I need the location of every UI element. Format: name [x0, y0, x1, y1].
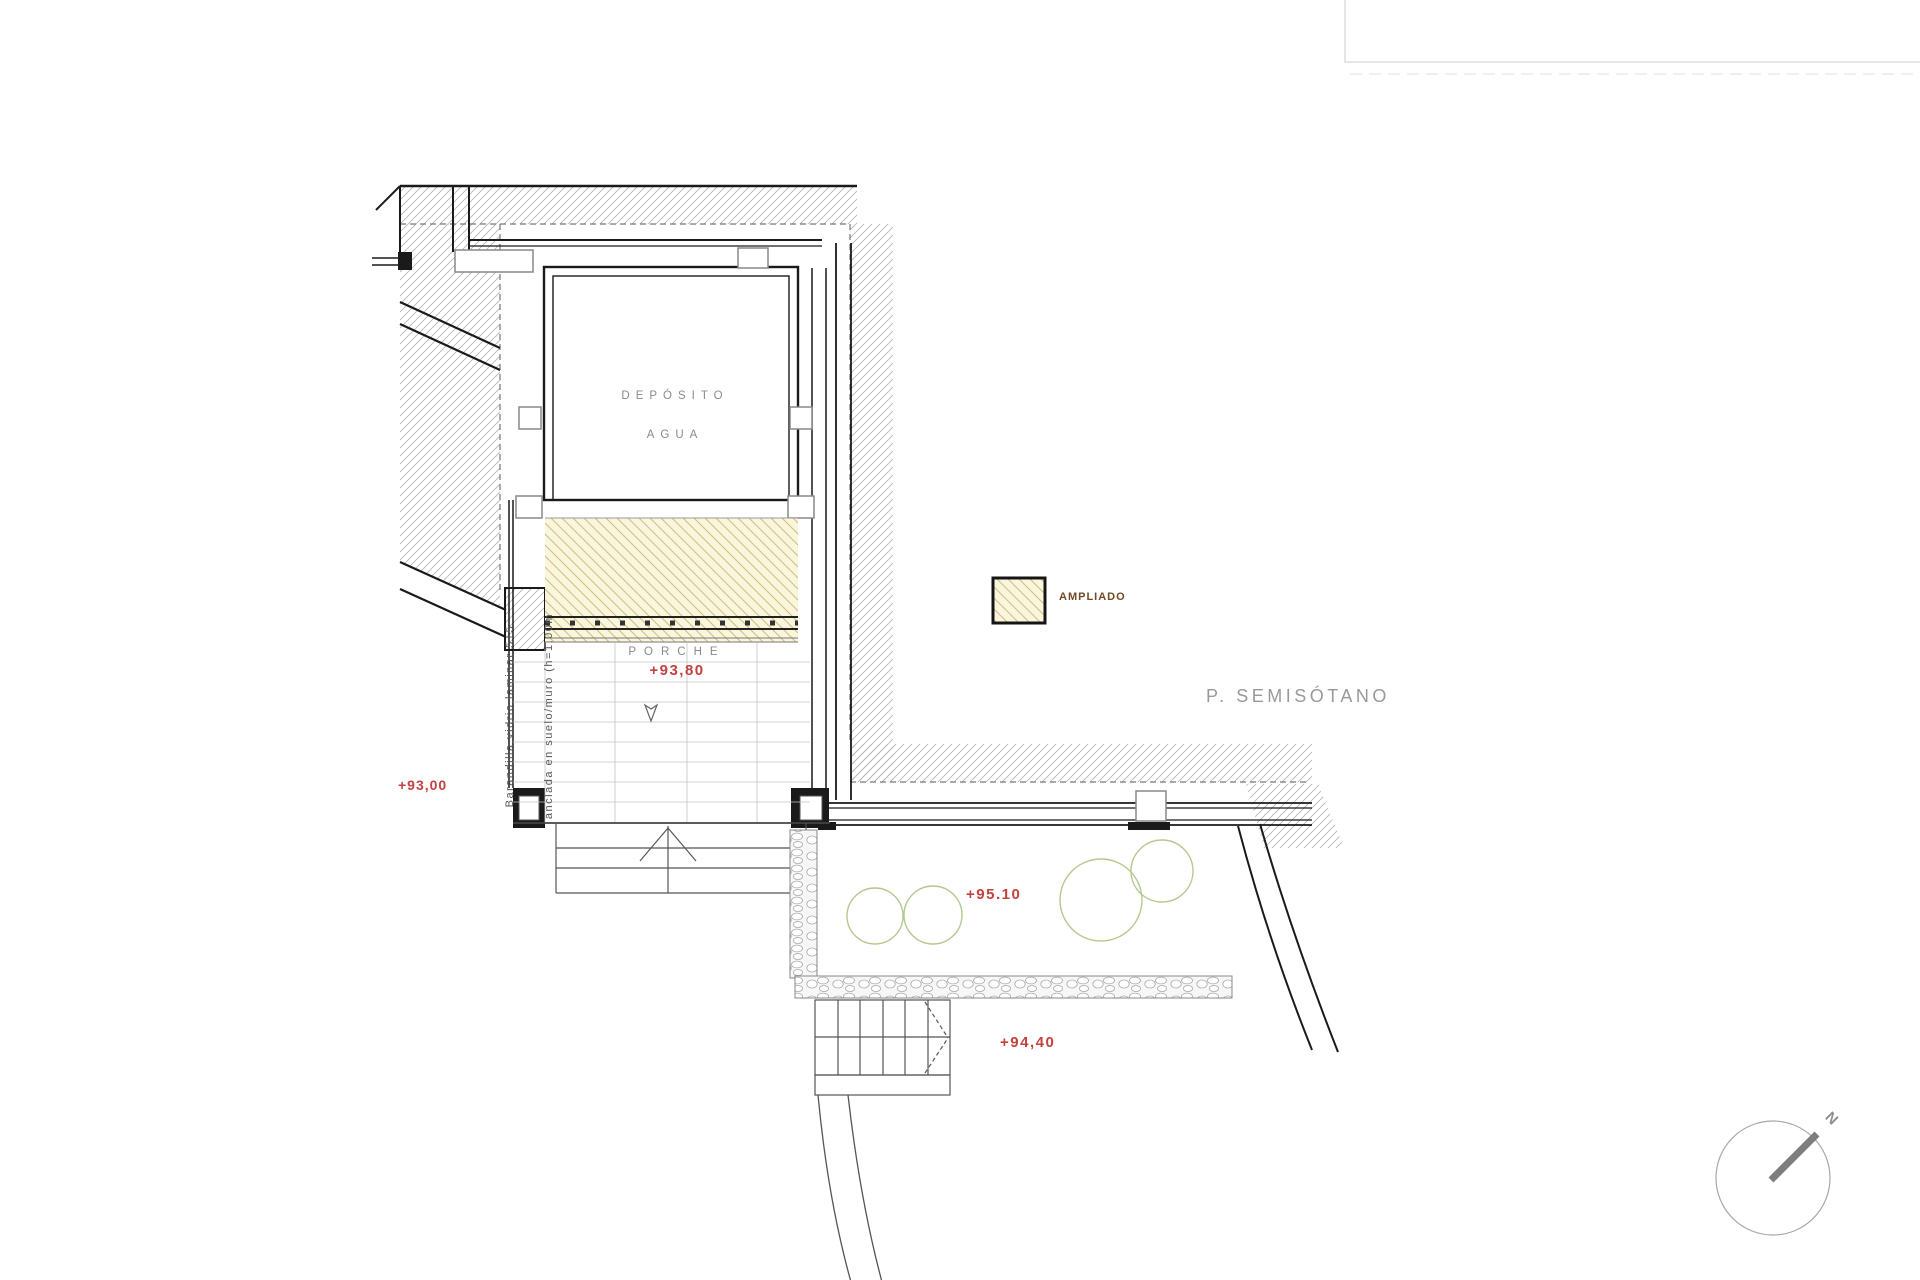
room-label: DEPÓSITO AGUA: [575, 364, 775, 468]
railing-note-line2: anclada en suelo/muro (h=1.00m: [543, 591, 556, 841]
door-swing-arrow-icon: [645, 705, 657, 721]
ampliado-zone: [545, 518, 798, 642]
railing-note-line1: Barandilla vidrio laminar 5+5: [504, 591, 517, 841]
north-compass-icon: [1716, 1121, 1830, 1235]
porch-label: PORCHE: [597, 646, 757, 658]
lower-terrace-level-label: +94,40: [1000, 1034, 1055, 1051]
floor-plan-drawing: [0, 0, 1920, 1280]
floor-plan-canvas: DEPÓSITO AGUA PORCHE +93,80 +93,00 +95.1…: [0, 0, 1920, 1280]
ampliado-legend-label: AMPLIADO: [1059, 591, 1126, 603]
legend-swatch: [993, 578, 1045, 623]
title-block-edge: [1345, 0, 1920, 74]
room-label-line2: AGUA: [575, 429, 775, 442]
level-93-00-label: +93,00: [398, 777, 447, 793]
porch-steps: [556, 823, 806, 893]
exterior-stairs: [815, 1000, 950, 1095]
garden-path: [818, 1095, 882, 1280]
floor-title-label: P. SEMISÓTANO: [1206, 686, 1390, 707]
railing-note: Barandilla vidrio laminar 5+5 anclada en…: [478, 591, 504, 841]
terrace: [790, 824, 1338, 1052]
porch-level-label: +93,80: [597, 662, 757, 679]
terrace-level-label: +95.10: [966, 886, 1021, 903]
road-curves: [1238, 824, 1338, 1052]
room-label-line1: DEPÓSITO: [575, 390, 775, 403]
